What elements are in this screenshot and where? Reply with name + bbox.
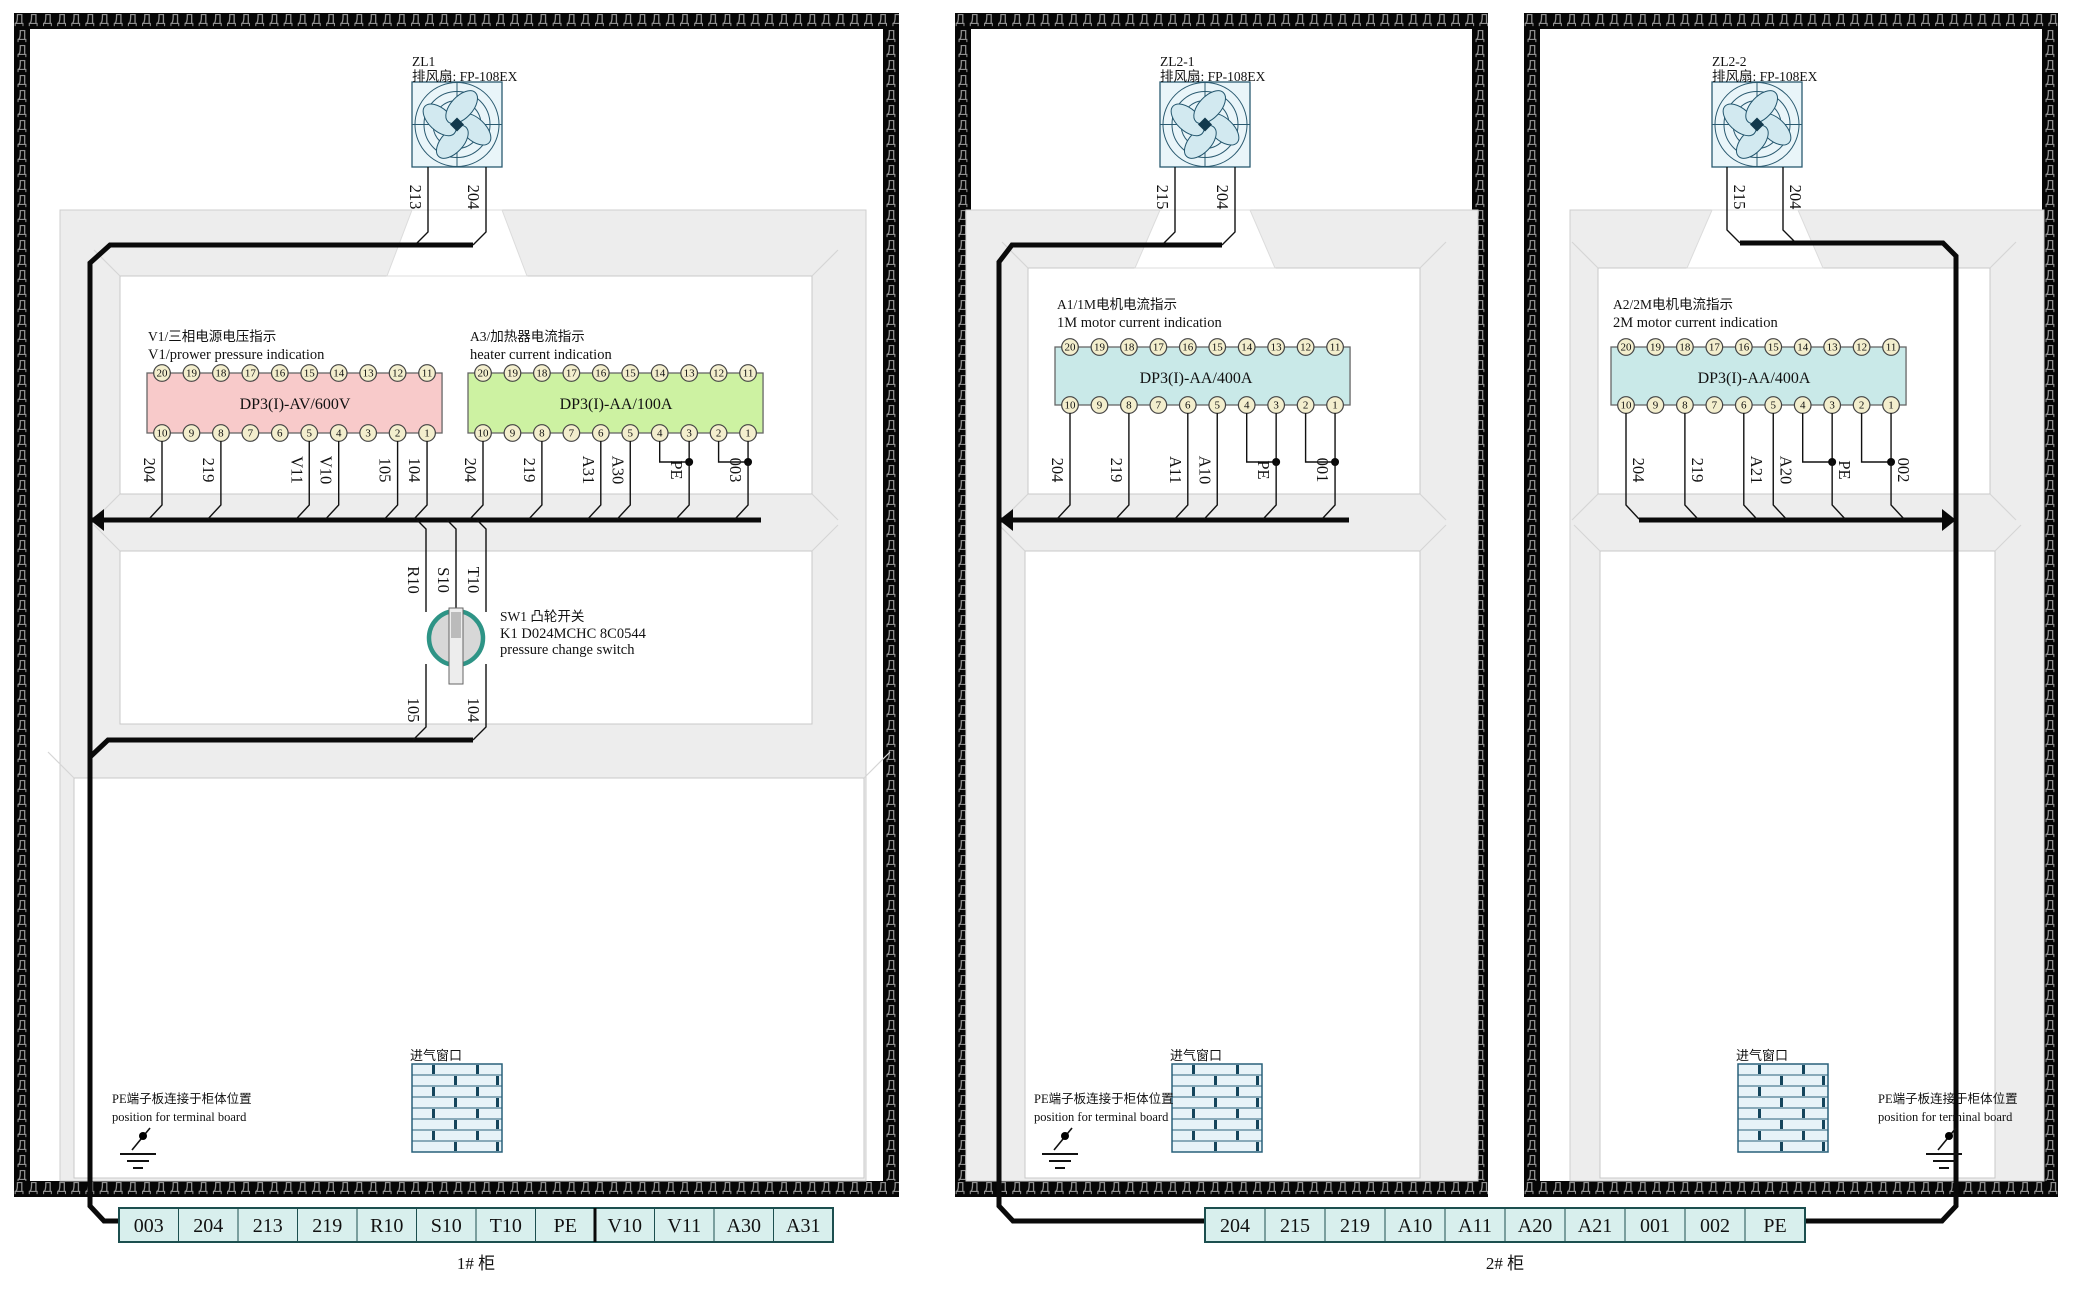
terminal-cell-label: 219 (312, 1215, 342, 1237)
terminal-cell-label: 204 (1220, 1215, 1250, 1237)
terminal-cell-label: A30 (727, 1215, 761, 1237)
strip-caption-2: 2# 柜 (1486, 1254, 1524, 1273)
terminal-number: 10 (1621, 400, 1633, 412)
wire-label: 204 (464, 185, 483, 210)
wire-label: 219 (1107, 458, 1126, 483)
pe-note-zh: PE端子板连接于柜体位置 (1878, 1091, 2018, 1106)
wire-label: 219 (520, 458, 539, 483)
terminal-number: 7 (1156, 400, 1162, 412)
terminal-number: 20 (1621, 342, 1633, 354)
wire-label: V10 (317, 456, 336, 484)
terminal-cell-label: T10 (490, 1215, 522, 1237)
terminal-number: 16 (1182, 342, 1194, 354)
wire-label: 204 (1786, 185, 1805, 210)
meter-title-zh: A3/加热器电流指示 (470, 329, 585, 344)
terminal-number: 19 (1094, 342, 1106, 354)
meter-title-en: V1/prower pressure indication (148, 347, 325, 363)
terminal-cell-label: 001 (1640, 1215, 1670, 1237)
wire-label: 204 (1213, 185, 1232, 210)
terminal-number: 16 (274, 368, 286, 380)
wire-label: 213 (406, 185, 425, 210)
terminal-number: 19 (507, 368, 519, 380)
fan-tag: ZL2-2 (1712, 54, 1747, 69)
terminal-number: 19 (186, 368, 198, 380)
terminal-number: 17 (245, 368, 257, 380)
terminal-number: 13 (1827, 342, 1839, 354)
terminal-number: 17 (1153, 342, 1165, 354)
wire-label: A10 (1195, 456, 1214, 484)
terminal-number: 15 (625, 368, 637, 380)
wire-label: 204 (140, 458, 159, 483)
wire-label: A31 (579, 456, 598, 484)
meter-model: DP3(I)-AA/400A (1140, 370, 1253, 387)
switch-tag: SW1 凸轮开关 (500, 609, 584, 624)
terminal-number: 12 (392, 368, 403, 380)
terminal-cell-label: 002 (1700, 1215, 1730, 1237)
switch-type: K1 D024MCHC 8C0544 (500, 626, 647, 642)
wire-label: 204 (1629, 458, 1648, 483)
terminal-cell-label: V11 (667, 1215, 701, 1237)
terminal-cell-label: S10 (431, 1215, 462, 1237)
wire-label: 215 (1730, 185, 1749, 210)
terminal-number: 5 (1215, 400, 1221, 412)
fan-model-label: 排风扇: FP-108EX (412, 69, 518, 84)
meter-model: DP3(I)-AA/400A (1698, 370, 1811, 387)
terminal-number: 20 (157, 368, 169, 380)
terminal-number: 18 (1123, 342, 1135, 354)
terminal-number: 15 (304, 368, 316, 380)
terminal-number: 9 (1097, 400, 1103, 412)
terminal-number: 20 (1065, 342, 1077, 354)
wire-label: A11 (1166, 456, 1185, 484)
terminal-number: 2 (716, 428, 722, 440)
meter-title-en: 2M motor current indication (1613, 315, 1778, 331)
wire-label: 204 (461, 458, 480, 483)
terminal-number: 10 (157, 428, 169, 440)
meter-title-zh: V1/三相电源电压指示 (148, 329, 276, 344)
terminal-number: 11 (1330, 342, 1341, 354)
meter-title-zh: A2/2M电机电流指示 (1613, 297, 1733, 312)
wire-label: S10 (434, 567, 453, 593)
terminal-number: 5 (307, 428, 313, 440)
terminal-number: 1 (1888, 400, 1894, 412)
terminal-cell-label: A21 (1578, 1215, 1612, 1237)
wire-label: 105 (376, 458, 395, 483)
terminal-number: 7 (1712, 400, 1718, 412)
terminal-number: 17 (566, 368, 578, 380)
terminal-number: 12 (1300, 342, 1311, 354)
terminal-number: 6 (598, 428, 604, 440)
wire-label: A30 (608, 456, 627, 484)
terminal-number: 1 (424, 428, 430, 440)
terminal-number: 8 (539, 428, 545, 440)
terminal-number: 1 (745, 428, 751, 440)
terminal-cell-label: 219 (1340, 1215, 1370, 1237)
pe-note-zh: PE端子板连接于柜体位置 (1034, 1091, 1174, 1106)
terminal-number: 14 (1241, 342, 1253, 354)
terminal-number: 15 (1768, 342, 1780, 354)
drawing-canvas: ДДДДДДДДДДДДДДДДДДДДДДДДДДДДДДДДДДДДДДДД… (0, 0, 2092, 1293)
wire-label: PE (1835, 460, 1854, 479)
wiring-diagram: 2132042010199188177166155144133122111204… (0, 0, 2092, 1293)
vent-label: 进气窗口 (410, 1048, 462, 1063)
terminal-number: 3 (686, 428, 692, 440)
meter-model: DP3(I)-AV/600V (240, 396, 351, 413)
terminal-number: 16 (1738, 342, 1750, 354)
air-inlet-window (1172, 1064, 1262, 1152)
fan-tag: ZL2-1 (1160, 54, 1195, 69)
wire-label: 219 (1688, 458, 1707, 483)
terminal-number: 3 (1829, 400, 1835, 412)
terminal-number: 12 (713, 368, 724, 380)
terminal-number: 4 (657, 428, 663, 440)
terminal-number: 17 (1709, 342, 1721, 354)
terminal-number: 13 (1271, 342, 1283, 354)
terminal-strip-1: 003204213219R10S10T10PEV10V11A30A31 (119, 1208, 833, 1242)
air-inlet-window (412, 1064, 502, 1152)
terminal-number: 18 (536, 368, 548, 380)
terminal-number: 7 (569, 428, 575, 440)
terminal-number: 15 (1212, 342, 1224, 354)
wire-label: T10 (464, 567, 483, 594)
wire-label: A21 (1747, 456, 1766, 484)
terminal-number: 8 (218, 428, 224, 440)
switch-description: pressure change switch (500, 642, 635, 658)
terminal-cell-label: PE (1763, 1215, 1786, 1237)
terminal-cell-label: A20 (1518, 1215, 1552, 1237)
meter-title-zh: A1/1M电机电流指示 (1057, 297, 1177, 312)
pe-note-zh: PE端子板连接于柜体位置 (112, 1091, 252, 1106)
wire-label: 104 (464, 698, 483, 723)
terminal-number: 4 (336, 428, 342, 440)
terminal-number: 14 (333, 368, 345, 380)
terminal-number: 14 (654, 368, 666, 380)
terminal-number: 11 (743, 368, 754, 380)
terminal-number: 11 (1886, 342, 1897, 354)
terminal-number: 10 (478, 428, 490, 440)
pe-note-en: position for terminal board (112, 1110, 247, 1124)
wire-label: A20 (1776, 456, 1795, 484)
exhaust-fan-icon (412, 82, 502, 167)
meter-model: DP3(I)-AA/100A (560, 396, 673, 413)
terminal-cell-label: 215 (1280, 1215, 1310, 1237)
exhaust-fan-icon (1712, 82, 1802, 167)
wire-label: 104 (405, 458, 424, 483)
wire-label: 001 (1313, 458, 1332, 483)
vent-label: 进气窗口 (1170, 1048, 1222, 1063)
meter-title-en: heater current indication (470, 347, 612, 363)
vent-label: 进气窗口 (1736, 1048, 1788, 1063)
wire-label: PE (667, 460, 686, 479)
terminal-number: 5 (1771, 400, 1777, 412)
wire-label: 002 (1894, 458, 1913, 483)
terminal-number: 9 (1653, 400, 1659, 412)
fan-tag: ZL1 (412, 54, 435, 69)
wire-label: V11 (287, 456, 306, 484)
terminal-number: 10 (1065, 400, 1077, 412)
pe-note-en: position for terminal board (1878, 1110, 2013, 1124)
terminal-number: 16 (595, 368, 607, 380)
terminal-strip-2: 204215219A10A11A20A21001002PE (1205, 1208, 1805, 1242)
meter-title-en: 1M motor current indication (1057, 315, 1222, 331)
terminal-number: 20 (478, 368, 490, 380)
terminal-number: 18 (215, 368, 227, 380)
terminal-number: 2 (1303, 400, 1309, 412)
terminal-number: 11 (422, 368, 433, 380)
pe-note-en: position for terminal board (1034, 1110, 1169, 1124)
terminal-cell-label: 213 (253, 1215, 283, 1237)
terminal-number: 9 (510, 428, 516, 440)
wire-label: 105 (404, 698, 423, 723)
terminal-number: 2 (1859, 400, 1865, 412)
wire-label: PE (1254, 460, 1273, 479)
terminal-cell-label: 003 (134, 1215, 164, 1237)
terminal-number: 6 (1185, 400, 1191, 412)
terminal-cell-label: 204 (193, 1215, 223, 1237)
terminal-number: 12 (1856, 342, 1867, 354)
terminal-number: 13 (363, 368, 375, 380)
terminal-number: 18 (1679, 342, 1691, 354)
wire-label: R10 (404, 566, 423, 594)
exhaust-fan-icon (1160, 82, 1250, 167)
terminal-number: 9 (189, 428, 195, 440)
strip-caption-1: 1# 柜 (457, 1254, 495, 1273)
wire-label: 219 (199, 458, 218, 483)
terminal-cell-label: A11 (1458, 1215, 1492, 1237)
air-inlet-window (1738, 1064, 1828, 1152)
terminal-number: 1 (1332, 400, 1338, 412)
terminal-number: 8 (1682, 400, 1688, 412)
terminal-cell-label: A10 (1398, 1215, 1432, 1237)
wire-label: 215 (1153, 185, 1172, 210)
terminal-number: 19 (1650, 342, 1662, 354)
fan-model-label: 排风扇: FP-108EX (1160, 69, 1266, 84)
terminal-number: 7 (248, 428, 254, 440)
wire-label: 003 (726, 458, 745, 483)
terminal-cell-label: V10 (608, 1215, 642, 1237)
terminal-number: 6 (1741, 400, 1747, 412)
terminal-cell-label: R10 (370, 1215, 403, 1237)
terminal-number: 13 (684, 368, 696, 380)
fan-model-label: 排风扇: FP-108EX (1712, 69, 1818, 84)
terminal-number: 6 (277, 428, 283, 440)
terminal-number: 4 (1244, 400, 1250, 412)
terminal-cell-label: PE (554, 1215, 577, 1237)
terminal-number: 4 (1800, 400, 1806, 412)
terminal-number: 5 (628, 428, 634, 440)
terminal-number: 2 (395, 428, 401, 440)
terminal-number: 3 (1273, 400, 1279, 412)
wire-label: 204 (1048, 458, 1067, 483)
terminal-number: 8 (1126, 400, 1132, 412)
terminal-number: 3 (365, 428, 371, 440)
terminal-cell-label: A31 (786, 1215, 820, 1237)
terminal-number: 14 (1797, 342, 1809, 354)
